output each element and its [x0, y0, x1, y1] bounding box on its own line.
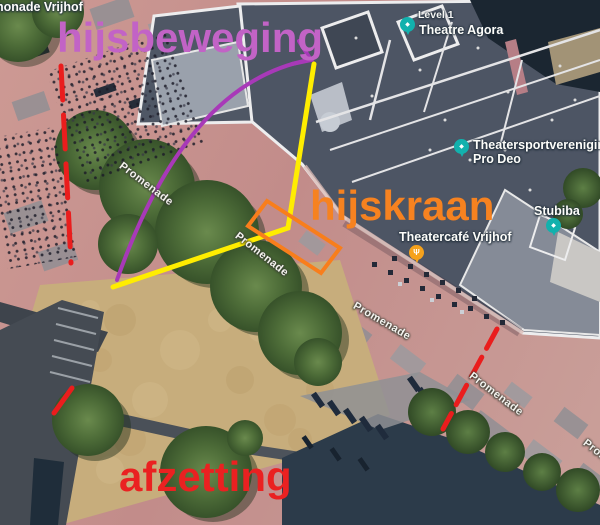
annotation-text-hijskraan: hijskraan — [310, 182, 494, 230]
stubiba-pin-icon[interactable]: ◆ — [546, 218, 561, 233]
theatre-masks-icon: ◆ — [459, 144, 464, 150]
poi-label-level[interactable]: Level 1 — [418, 9, 454, 21]
street-label-promenade-5-partial: Promenade — [581, 437, 600, 486]
theatre-masks-icon: ◆ — [551, 223, 556, 229]
restaurant-pin-icon[interactable]: Ψ — [409, 245, 424, 260]
annotation-text-afzetting: afzetting — [119, 453, 292, 501]
poi-label-promenade-vrijhof-partial[interactable]: nonade Vrijhof — [0, 0, 83, 14]
street-label-promenade-3: Promenade — [351, 300, 413, 343]
street-label-promenade-4: Promenade — [467, 370, 526, 418]
theatre-masks-icon: ◆ — [405, 22, 410, 28]
poi-label-theatercafe-vrijhof[interactable]: Theatercafé Vrijhof — [399, 230, 512, 244]
fork-knife-icon: Ψ — [413, 249, 419, 257]
street-label-promenade-2: Promenade — [233, 230, 291, 279]
poi-label-theatre-agora[interactable]: Theatre Agora — [419, 23, 503, 37]
aerial-map: nonade Vrijhof Level 1 ◆ Theatre Agora ◆… — [0, 0, 600, 525]
labels-layer: nonade Vrijhof Level 1 ◆ Theatre Agora ◆… — [0, 0, 600, 525]
annotation-text-hijsbeweging: hijsbeweging — [57, 14, 323, 62]
theatre-agora-pin-icon[interactable]: ◆ — [400, 17, 415, 32]
poi-label-theatersportvereniging[interactable]: Theatersportvereniging — [473, 138, 600, 152]
theatersport-pin-icon[interactable]: ◆ — [454, 139, 469, 154]
poi-label-pro-deo[interactable]: Pro Deo — [473, 152, 521, 166]
poi-label-stubiba[interactable]: Stubiba — [534, 204, 580, 218]
street-label-promenade-1: Promenade — [117, 160, 176, 208]
